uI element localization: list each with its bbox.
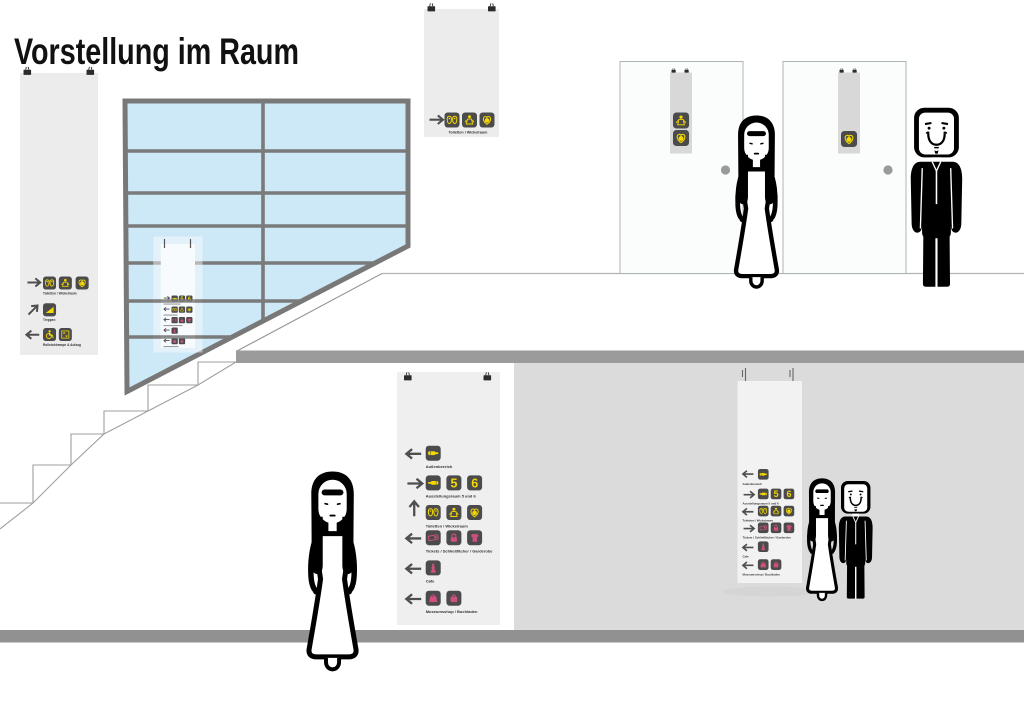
svg-text:Außenbereich: Außenbereich [426,464,453,469]
svg-text:Tickets / Schließfächer / Gard: Tickets / Schließfächer / Garderobe [743,536,792,540]
svg-text:Treppen: Treppen [43,318,55,322]
svg-text:Außenbereich: Außenbereich [743,482,763,486]
svg-text:Toiletten / Wickelraum: Toiletten / Wickelraum [43,292,77,296]
svg-text:Rollstuhlrampe & Aufzug: Rollstuhlrampe & Aufzug [43,343,81,347]
svg-text:Toiletten / Wickelraum: Toiletten / Wickelraum [449,131,489,135]
svg-text:Ausstellungsraum 5 und 6: Ausstellungsraum 5 und 6 [743,502,780,506]
svg-text:Tickets / Schließfächer / Gard: Tickets / Schließfächer / Garderobe [426,549,494,554]
svg-text:Cafe: Cafe [426,579,435,584]
svg-text:Toiletten / Wickelraum: Toiletten / Wickelraum [426,523,469,528]
svg-text:Cafe: Cafe [743,554,750,558]
svg-text:Toiletten / Wickelraum: Toiletten / Wickelraum [743,519,774,523]
svg-text:Museumsshop / Buchladen: Museumsshop / Buchladen [426,609,478,614]
svg-text:Museumsshop / Buchladen: Museumsshop / Buchladen [743,572,781,576]
svg-text:Vorstellung im Raum: Vorstellung im Raum [14,31,299,72]
svg-text:Ausstellungsraum 5 und 6: Ausstellungsraum 5 und 6 [426,494,477,499]
